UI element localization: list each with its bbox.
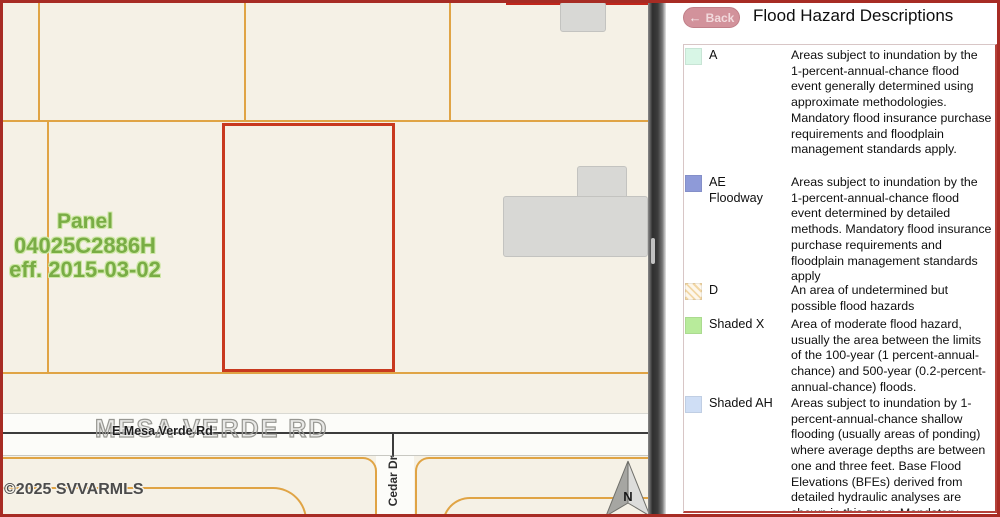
zone-ae-swatch (685, 175, 702, 192)
back-button[interactable]: ← Back (683, 7, 740, 28)
zone-shaded-x-swatch (685, 317, 702, 334)
building-footprint (560, 2, 606, 32)
fema-panel-number: 04025C2886H (0, 234, 170, 258)
zone-d-swatch (685, 283, 702, 300)
fema-panel-effective-date: eff. 2015-03-02 (0, 258, 170, 282)
selected-parcel[interactable] (222, 123, 395, 372)
parcel-line (38, 0, 40, 122)
back-arrow-icon: ← (689, 11, 702, 24)
zone-a-swatch (685, 48, 702, 65)
copyright-watermark: ©2025 SVVARMLS (4, 481, 144, 499)
fema-panel-label-line1: Panel (0, 210, 170, 234)
zone-description: An area of undetermined but possible flo… (791, 283, 992, 314)
zone-description: Areas subject to inundation by the 1-per… (791, 175, 992, 285)
building-footprint (577, 166, 627, 200)
pane-divider[interactable] (648, 0, 666, 517)
zone-description: Area of moderate flood hazard, usually t… (791, 317, 992, 396)
zone-code: D (709, 283, 789, 299)
flood-map-app: Panel 04025C2886H eff. 2015-03-02 MESA V… (0, 0, 1000, 517)
zone-shaded-ah-swatch (685, 396, 702, 413)
zone-description: Areas subject to inundation by 1-percent… (791, 396, 992, 513)
north-arrow-icon: N (600, 460, 650, 517)
flood-legend: A Areas subject to inundation by the 1-p… (683, 44, 997, 513)
map-viewport[interactable]: Panel 04025C2886H eff. 2015-03-02 MESA V… (0, 0, 650, 517)
fema-panel-label: Panel 04025C2886H eff. 2015-03-02 (0, 210, 170, 282)
divider-handle[interactable] (651, 238, 655, 264)
parcel-line (449, 0, 451, 121)
parcel-line (244, 0, 246, 122)
parcel-line (0, 372, 650, 374)
cedar-dr-label: Cedar Dr (386, 438, 404, 517)
north-arrow-label: N (623, 489, 632, 504)
zone-code: Shaded AH (709, 396, 789, 412)
panel-title: Flood Hazard Descriptions (753, 6, 953, 26)
parcel-line (0, 120, 650, 122)
road-label: E Mesa Verde Rd (112, 424, 213, 438)
flood-hazard-panel: ← Back Flood Hazard Descriptions A Areas… (666, 0, 1000, 517)
zone-code: AE Floodway (709, 175, 789, 206)
back-button-label: Back (706, 11, 735, 25)
zone-code: Shaded X (709, 317, 789, 333)
zone-description: Areas subject to inundation by the 1-per… (791, 48, 992, 158)
zone-code: A (709, 48, 789, 64)
building-footprint (503, 196, 648, 257)
